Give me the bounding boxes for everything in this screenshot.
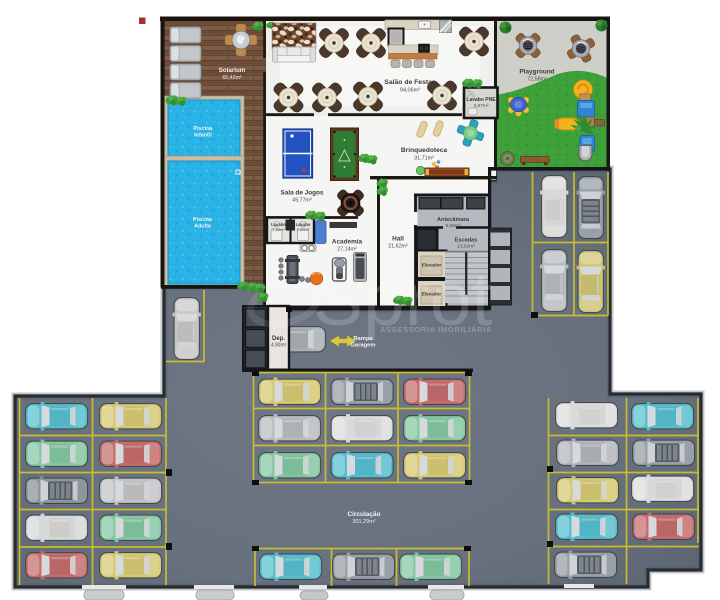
svg-text:Antecâmara: Antecâmara — [437, 217, 470, 223]
svg-text:Elevador: Elevador — [422, 292, 442, 297]
svg-text:ASSESSORIA IMOBILIÁRIA: ASSESSORIA IMOBILIÁRIA — [380, 325, 492, 334]
svg-text:Elevador: Elevador — [422, 263, 442, 268]
svg-text:13,92m²: 13,92m² — [457, 244, 475, 250]
svg-text:301,29m²: 301,29m² — [352, 519, 375, 525]
svg-text:65,42m²: 65,42m² — [222, 75, 241, 81]
svg-text:27,14m²: 27,14m² — [337, 247, 357, 253]
svg-text:1,86m²: 1,86m² — [297, 227, 310, 232]
svg-text:Academia: Academia — [332, 239, 363, 246]
svg-text:45,77m²: 45,77m² — [292, 198, 312, 204]
svg-text:5,58m²: 5,58m² — [446, 223, 461, 229]
svg-text:72,58m²: 72,58m² — [527, 77, 547, 83]
svg-text:4,90m²: 4,90m² — [271, 343, 287, 349]
svg-text:Solarium: Solarium — [219, 67, 246, 74]
svg-text:Salão de Festas: Salão de Festas — [384, 79, 436, 86]
svg-text:3,87m²: 3,87m² — [474, 103, 489, 109]
svg-text:94,06m²: 94,06m² — [400, 88, 420, 94]
svg-text:Circulação: Circulação — [347, 511, 380, 518]
svg-text:Garagem: Garagem — [350, 343, 375, 349]
svg-text:Brinquedoteca: Brinquedoteca — [401, 147, 447, 154]
svg-text:Dep.: Dep. — [272, 336, 285, 342]
svg-text:Rampa: Rampa — [353, 336, 373, 342]
svg-text:Piscina: Piscina — [194, 126, 214, 132]
svg-text:Playground: Playground — [519, 69, 554, 76]
svg-text:1,86m²: 1,86m² — [272, 227, 285, 232]
svg-text:Infantil: Infantil — [194, 133, 212, 139]
svg-text:Piscina: Piscina — [193, 217, 213, 223]
svg-text:Escadas: Escadas — [455, 238, 478, 244]
svg-text:21,62m²: 21,62m² — [388, 244, 408, 250]
svg-text:Adulta: Adulta — [194, 224, 212, 230]
svg-text:31,71m²: 31,71m² — [414, 156, 434, 162]
svg-text:Sala de Jogos: Sala de Jogos — [281, 190, 324, 197]
svg-text:Lavabo PNE: Lavabo PNE — [466, 97, 496, 103]
svg-text:Hall: Hall — [392, 236, 404, 243]
